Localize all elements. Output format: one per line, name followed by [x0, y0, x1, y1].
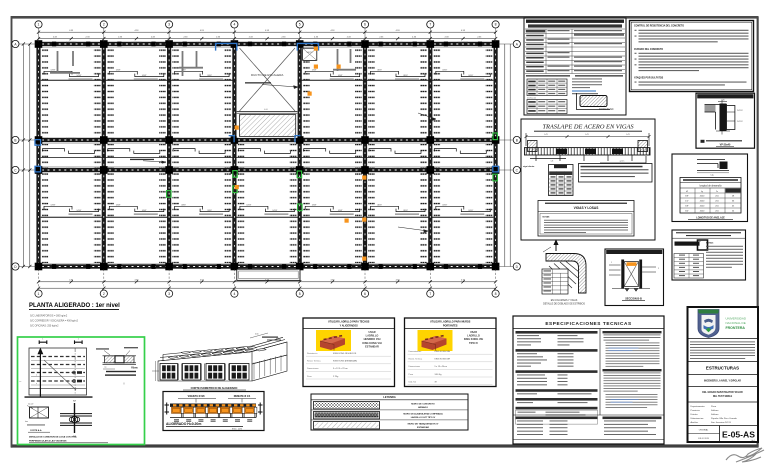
- svg-text:INGENIERO LA NIVEL Y DIPOLAR: INGENIERO LA NIVEL Y DIPOLAR: [704, 379, 741, 382]
- svg-text:1Ø3/8": 1Ø3/8": [246, 205, 251, 207]
- svg-text:DETALLE DE CONEXION DE LOSA CO: DETALLE DE CONEXION DE LOSA CON VIGA: [29, 435, 77, 438]
- svg-text:longitud de desarrollo: longitud de desarrollo: [700, 184, 723, 187]
- svg-text:TIPO IV: TIPO IV: [469, 342, 478, 345]
- svg-text:1Ø3/8": 1Ø3/8": [468, 75, 473, 77]
- svg-text:Dimensiones: Dimensiones: [307, 368, 319, 370]
- svg-text:V-101(25X40): V-101(25X40): [458, 42, 469, 44]
- svg-text:1Ø3/8": 1Ø3/8": [116, 205, 121, 207]
- svg-text:1Ø3/8": 1Ø3/8": [142, 210, 147, 212]
- svg-text:g min: g min: [620, 161, 624, 163]
- svg-text:V-101(25X40): V-101(25X40): [392, 42, 403, 44]
- svg-text:KING KONG VIH: KING KONG VIH: [362, 342, 382, 345]
- svg-text:MURO DE TABIQUERIA KK IV: MURO DE TABIQUERIA KK IV: [408, 423, 439, 426]
- svg-text:V-102(25X40): V-102(25X40): [131, 138, 142, 140]
- svg-text:1Ø3/8": 1Ø3/8": [403, 210, 408, 212]
- svg-text:VIGUETA Ø 3/8: VIGUETA Ø 3/8: [188, 395, 206, 398]
- svg-text:REMATE Ø 1/4: REMATE Ø 1/4: [234, 395, 251, 398]
- svg-text:V-102(25X40): V-102(25X40): [392, 138, 403, 140]
- svg-text:1: 1: [78, 339, 79, 341]
- svg-text:Und /m2: Und /m2: [409, 381, 417, 383]
- svg-text:6: 6: [364, 292, 366, 296]
- svg-text:V-101(25X40): V-101(25X40): [66, 42, 77, 44]
- svg-text:min.e/2: min.e/2: [28, 404, 33, 406]
- svg-text:Distrito:: Distrito:: [691, 413, 699, 416]
- svg-text:1Ø3/8": 1Ø3/8": [442, 70, 447, 72]
- svg-text:V-104(25X40): V-104(25X40): [392, 265, 403, 267]
- svg-text:ESTANDAR: ESTANDAR: [365, 345, 379, 348]
- svg-text:1Ø3/8": 1Ø3/8": [51, 205, 56, 207]
- svg-text:4.00: 4.00: [264, 109, 268, 111]
- svg-text:DEL TEST SIMILE: DEL TEST SIMILE: [713, 396, 733, 398]
- svg-text:DEL GRADO INVESTIGATOR TAILOR: DEL GRADO INVESTIGATOR TAILOR: [702, 391, 743, 394]
- svg-text:1/2": 1/2": [685, 201, 689, 203]
- svg-text:V-103(25X40): V-103(25X40): [458, 168, 469, 170]
- svg-text:ARMADO: ARMADO: [418, 406, 428, 409]
- svg-text:3: 3: [168, 23, 170, 27]
- svg-text:HENDIDO 15H: HENDIDO 15H: [364, 338, 381, 341]
- svg-text:PORTANTES: PORTANTES: [443, 324, 458, 327]
- svg-text:8Ø: 8Ø: [73, 400, 76, 402]
- svg-text:NOTAS:: NOTAS:: [706, 241, 714, 244]
- svg-text:B: B: [516, 138, 518, 142]
- svg-text:8: 8: [495, 23, 497, 27]
- svg-text:V-103(25X40): V-103(25X40): [131, 168, 142, 170]
- svg-text:1Ø3/8": 1Ø3/8": [116, 70, 121, 72]
- svg-text:V-103(25X40): V-103(25X40): [197, 168, 208, 170]
- svg-text:SECCION B-B: SECCION B-B: [625, 297, 642, 300]
- svg-text:V-104(25X40): V-104(25X40): [458, 265, 469, 267]
- svg-text:V-104(25X40): V-104(25X40): [131, 265, 142, 267]
- svg-text:7: 7: [429, 292, 431, 296]
- svg-text:4: 4: [233, 292, 235, 296]
- svg-text:0.05: 0.05: [276, 338, 279, 340]
- svg-text:B: B: [14, 138, 16, 142]
- svg-text:UNIVERSIDAD: UNIVERSIDAD: [726, 317, 747, 321]
- svg-text:KING KONG 18H: KING KONG 18H: [435, 359, 451, 361]
- svg-text:USAR: USAR: [470, 331, 477, 334]
- svg-text:1Ø3/8": 1Ø3/8": [181, 205, 186, 207]
- svg-text:2 Ø 1/2: 2 Ø 1/2: [737, 110, 743, 112]
- svg-text:V-102(25X40): V-102(25X40): [327, 138, 338, 140]
- svg-text:1: 1: [38, 292, 40, 296]
- svg-text:V-104(25X40): V-104(25X40): [66, 265, 77, 267]
- svg-text:1Ø3/8": 1Ø3/8": [468, 210, 473, 212]
- svg-text:V-104(25X40): V-104(25X40): [327, 265, 338, 267]
- svg-text:VP-20x40: VP-20x40: [720, 144, 731, 147]
- svg-text:3/4": 3/4": [685, 211, 689, 213]
- svg-text:LADRILLO: LADRILLO: [366, 335, 379, 338]
- svg-text:1: 1: [38, 23, 40, 27]
- svg-text:DUCTO DE ESCALERA: DUCTO DE ESCALERA: [251, 73, 283, 77]
- svg-text:2: 2: [658, 268, 659, 270]
- svg-text:5/8": 5/8": [685, 206, 689, 208]
- svg-text:1Ø3/8": 1Ø3/8": [272, 210, 277, 212]
- svg-text:1Ø3/8": 1Ø3/8": [51, 70, 56, 72]
- svg-text:3/8": 3/8": [685, 196, 689, 198]
- svg-text:viga inferior: viga inferior: [523, 166, 535, 168]
- svg-text:LEYENDA: LEYENDA: [383, 395, 396, 399]
- svg-text:1Ø3/8": 1Ø3/8": [377, 205, 382, 207]
- svg-text:NACIONAL DE: NACIONAL DE: [726, 321, 746, 325]
- svg-text:2: 2: [103, 23, 105, 27]
- svg-text:Resist. Termica: Resist. Termica: [307, 360, 322, 363]
- svg-text:MURO DE CONCRETO: MURO DE CONCRETO: [411, 404, 435, 406]
- svg-text:1 de 1: 1 de 1: [751, 440, 756, 442]
- svg-text:losa: losa: [25, 421, 28, 423]
- svg-text:0.30: 0.30: [255, 334, 258, 336]
- svg-text:Urbanizacion:: Urbanizacion:: [691, 417, 705, 420]
- svg-text:KING KONG 18H: KING KONG 18H: [435, 351, 451, 353]
- svg-text:DUCTO: DUCTO: [307, 52, 313, 54]
- svg-text:KING KONG 18 HUECOS: KING KONG 18 HUECOS: [333, 353, 357, 355]
- svg-text:2: 2: [103, 292, 105, 296]
- svg-text:PLANTA ALIGERADO : 1er nivel: PLANTA ALIGERADO : 1er nivel: [29, 303, 120, 309]
- svg-text:S/C OFICINAS: 250 kg/m2: S/C OFICINAS: 250 kg/m2: [30, 324, 59, 327]
- svg-text:Denominacion: Denominacion: [409, 351, 422, 353]
- svg-text:LONGITUD DE ANCLAJE: LONGITUD DE ANCLAJE: [696, 216, 725, 219]
- svg-text:Resistencia: Resistencia: [307, 352, 318, 355]
- svg-text:Auxiliar:: Auxiliar:: [691, 421, 699, 424]
- svg-text:ESTRUCTURAS: ESTRUCTURAS: [706, 366, 739, 371]
- svg-text:ORIGINAL: ORIGINAL: [699, 428, 709, 431]
- svg-text:UTILIZAR LADRILLO PARA MUROS: UTILIZAR LADRILLO PARA MUROS: [430, 321, 471, 324]
- svg-text:VIGAS Y LOSAS: VIGAS Y LOSAS: [574, 206, 599, 210]
- svg-text:4: 4: [233, 23, 235, 27]
- svg-text:NOTAS: NOTAS: [543, 215, 551, 218]
- svg-text:1Ø3/8": 1Ø3/8": [442, 205, 447, 207]
- svg-text:V-101(25X40): V-101(25X40): [131, 42, 142, 44]
- svg-text:Dimensiones: Dimensiones: [409, 366, 421, 368]
- svg-text:2.7Kg: 2.7Kg: [333, 376, 338, 378]
- svg-text:L/4: L/4: [551, 161, 554, 163]
- svg-text:Popular Villa Peru Canada: Popular Villa Peru Canada: [711, 417, 738, 420]
- svg-text:FRONTERA: FRONTERA: [726, 326, 746, 330]
- svg-text:Resist. Termica: Resist. Termica: [409, 358, 424, 361]
- svg-text:Sullana: Sullana: [711, 414, 719, 416]
- svg-text:6: 6: [364, 23, 366, 27]
- svg-text:V-102(25X40): V-102(25X40): [458, 138, 469, 140]
- svg-text:Sullana: Sullana: [711, 410, 719, 412]
- svg-text:1: 1: [611, 262, 612, 264]
- svg-text:1Ø3/8": 1Ø3/8": [142, 75, 147, 77]
- svg-text:V-101(25X40): V-101(25X40): [327, 42, 338, 44]
- svg-text:1Ø3/8": 1Ø3/8": [207, 75, 212, 77]
- svg-text:Piura: Piura: [711, 405, 717, 408]
- svg-text:MURO DE ALBANILERIA CONFINADA: MURO DE ALBANILERIA CONFINADA: [403, 413, 443, 416]
- svg-text:ALIGERADO H=0.20m: ALIGERADO H=0.20m: [166, 422, 201, 426]
- svg-text:V-103(25X40): V-103(25X40): [66, 168, 77, 170]
- svg-text:1Ø3/8": 1Ø3/8": [77, 210, 82, 212]
- svg-text:2 Ø 1/2: 2 Ø 1/2: [737, 121, 743, 123]
- svg-text:E-05-AS: E-05-AS: [722, 430, 755, 440]
- svg-text:1Ø3/8": 1Ø3/8": [377, 70, 382, 72]
- svg-text:1Ø3/8": 1Ø3/8": [207, 210, 212, 212]
- svg-text:V-102(25X40): V-102(25X40): [197, 138, 208, 140]
- svg-text:JULIO 2019: JULIO 2019: [698, 438, 710, 440]
- svg-text:ESC: 1/25: ESC: 1/25: [232, 429, 243, 431]
- svg-text:0.25: 0.25: [721, 100, 724, 102]
- svg-text:1: 1: [42, 339, 43, 341]
- svg-text:S/C LABORATORIOS = 300 kg/m2: S/C LABORATORIOS = 300 kg/m2: [30, 314, 68, 317]
- svg-text:Y ALIGERADOS: Y ALIGERADOS: [340, 324, 358, 327]
- svg-text:1Ø3/8": 1Ø3/8": [338, 210, 343, 212]
- svg-text:CURADO DEL CONCRETO: CURADO DEL CONCRETO: [634, 48, 663, 51]
- svg-text:V-104(25X40): V-104(25X40): [197, 265, 208, 267]
- svg-text:San Jeronimo N 113: San Jeronimo N 113: [711, 421, 732, 424]
- svg-text:S/C CORREDOR Y ESCALERA = 400: S/C CORREDOR Y ESCALERA = 400 kg/m2: [30, 319, 79, 322]
- svg-text:Dosificacion: Dosificacion: [527, 98, 536, 100]
- svg-text:1Ø3/8": 1Ø3/8": [312, 70, 317, 72]
- svg-text:V-101(25X40): V-101(25X40): [197, 42, 208, 44]
- svg-text:TRASLAPE DE ACERO EN VIGAS: TRASLAPE DE ACERO EN VIGAS: [542, 124, 634, 131]
- svg-text:8: 8: [495, 292, 497, 296]
- svg-text:5: 5: [299, 23, 301, 27]
- svg-text:e: e: [36, 383, 37, 385]
- svg-text:DETALLE DE DOBLADO DE ESTRIBOS: DETALLE DE DOBLADO DE ESTRIBOS: [543, 303, 585, 306]
- svg-text:Ldg: Ldg: [711, 175, 714, 177]
- svg-text:Provincia:: Provincia:: [691, 409, 701, 412]
- svg-text:ESTANDAR: ESTANDAR: [417, 426, 429, 429]
- svg-text:1Ø3/8": 1Ø3/8": [312, 205, 317, 207]
- svg-text:V-102(25X40): V-102(25X40): [66, 138, 77, 140]
- svg-text:V-103(25X40): V-103(25X40): [392, 168, 403, 170]
- svg-text:3: 3: [168, 292, 170, 296]
- svg-text:ESPECIFICACIONES TECNICAS: ESPECIFICACIONES TECNICAS: [545, 321, 631, 326]
- svg-text:ATAQUES POR SULFATOS: ATAQUES POR SULFATOS: [634, 77, 664, 80]
- svg-text:3.80 Kg: 3.80 Kg: [435, 374, 442, 376]
- svg-text:CORTE ISOMETRICO DE ALIGERADO: CORTE ISOMETRICO DE ALIGERADO: [191, 386, 238, 390]
- svg-text:5: 5: [299, 292, 301, 296]
- svg-text:asiento de viga: asiento de viga: [599, 107, 614, 110]
- svg-text:9 x 13 x 24cm: 9 x 13 x 24cm: [435, 366, 448, 368]
- svg-text:KING KONG (ESTANDAR): KING KONG (ESTANDAR): [333, 360, 357, 363]
- svg-text:Departamento:: Departamento:: [691, 405, 706, 408]
- svg-text:1Ø3/8": 1Ø3/8": [77, 75, 82, 77]
- svg-text:CORTE A-A: CORTE A-A: [30, 429, 42, 432]
- svg-text:V-103(25X40): V-103(25X40): [327, 168, 338, 170]
- svg-text:UTILIZAR LADRILLO PARA TECHOS: UTILIZAR LADRILLO PARA TECHOS: [328, 321, 370, 324]
- svg-text:USAR: USAR: [368, 331, 375, 334]
- svg-text:Ø: Ø: [686, 191, 688, 193]
- svg-text:1Ø3/8": 1Ø3/8": [403, 75, 408, 77]
- svg-text:LADRILLO UHT TIPO IV: LADRILLO UHT TIPO IV: [411, 416, 436, 419]
- svg-text:9 x 12.5 x 23 cm: 9 x 12.5 x 23 cm: [333, 368, 348, 370]
- svg-text:PERPENDICULAR A LAS VIGUETAS: PERPENDICULAR A LAS VIGUETAS: [29, 440, 67, 443]
- svg-text:KING KONG VIH: KING KONG VIH: [464, 338, 484, 341]
- svg-text:7: 7: [429, 23, 431, 27]
- svg-text:CONTROL DE RESISTENCIA DEL CON: CONTROL DE RESISTENCIA DEL CONCRETO: [634, 25, 684, 28]
- svg-text:e: e: [36, 375, 37, 377]
- svg-text:Vbm: Vbm: [131, 365, 138, 369]
- svg-text:LADRILLO: LADRILLO: [467, 335, 480, 338]
- svg-text:EN COLUMNAS Y VIGAS: EN COLUMNAS Y VIGAS: [551, 299, 578, 302]
- svg-text:1Ø3/8": 1Ø3/8": [338, 75, 343, 77]
